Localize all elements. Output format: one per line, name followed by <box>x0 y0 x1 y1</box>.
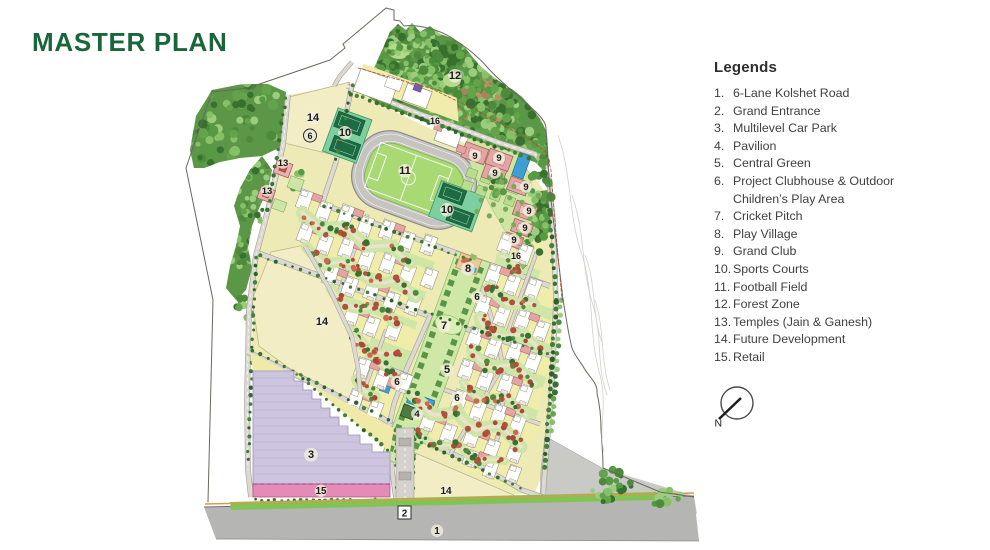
svg-text:10: 10 <box>339 127 351 139</box>
svg-text:16: 16 <box>511 251 521 261</box>
svg-text:12: 12 <box>449 70 461 82</box>
svg-text:9: 9 <box>526 206 531 217</box>
svg-text:9: 9 <box>492 168 497 179</box>
svg-text:9: 9 <box>522 223 527 234</box>
svg-text:7: 7 <box>441 320 447 332</box>
svg-text:11: 11 <box>399 165 411 177</box>
svg-text:6: 6 <box>307 131 312 141</box>
svg-text:6: 6 <box>394 377 400 388</box>
svg-text:16: 16 <box>430 116 440 126</box>
svg-text:13: 13 <box>262 186 273 197</box>
svg-text:9: 9 <box>496 153 501 164</box>
svg-text:14: 14 <box>307 112 320 124</box>
svg-text:9: 9 <box>472 151 477 162</box>
svg-text:15: 15 <box>315 486 327 497</box>
svg-text:8: 8 <box>465 263 471 275</box>
svg-text:13: 13 <box>278 158 289 169</box>
svg-text:9: 9 <box>511 235 516 246</box>
svg-text:10: 10 <box>441 204 453 216</box>
svg-text:5: 5 <box>444 364 450 376</box>
svg-text:6: 6 <box>454 393 460 404</box>
svg-text:6: 6 <box>474 292 480 303</box>
svg-text:4: 4 <box>414 409 420 420</box>
svg-text:14: 14 <box>316 316 329 328</box>
svg-text:14: 14 <box>440 486 452 497</box>
svg-text:1: 1 <box>434 526 440 537</box>
svg-text:N: N <box>715 418 723 430</box>
svg-text:3: 3 <box>308 449 314 461</box>
svg-text:9: 9 <box>523 182 528 193</box>
svg-text:2: 2 <box>402 509 408 520</box>
